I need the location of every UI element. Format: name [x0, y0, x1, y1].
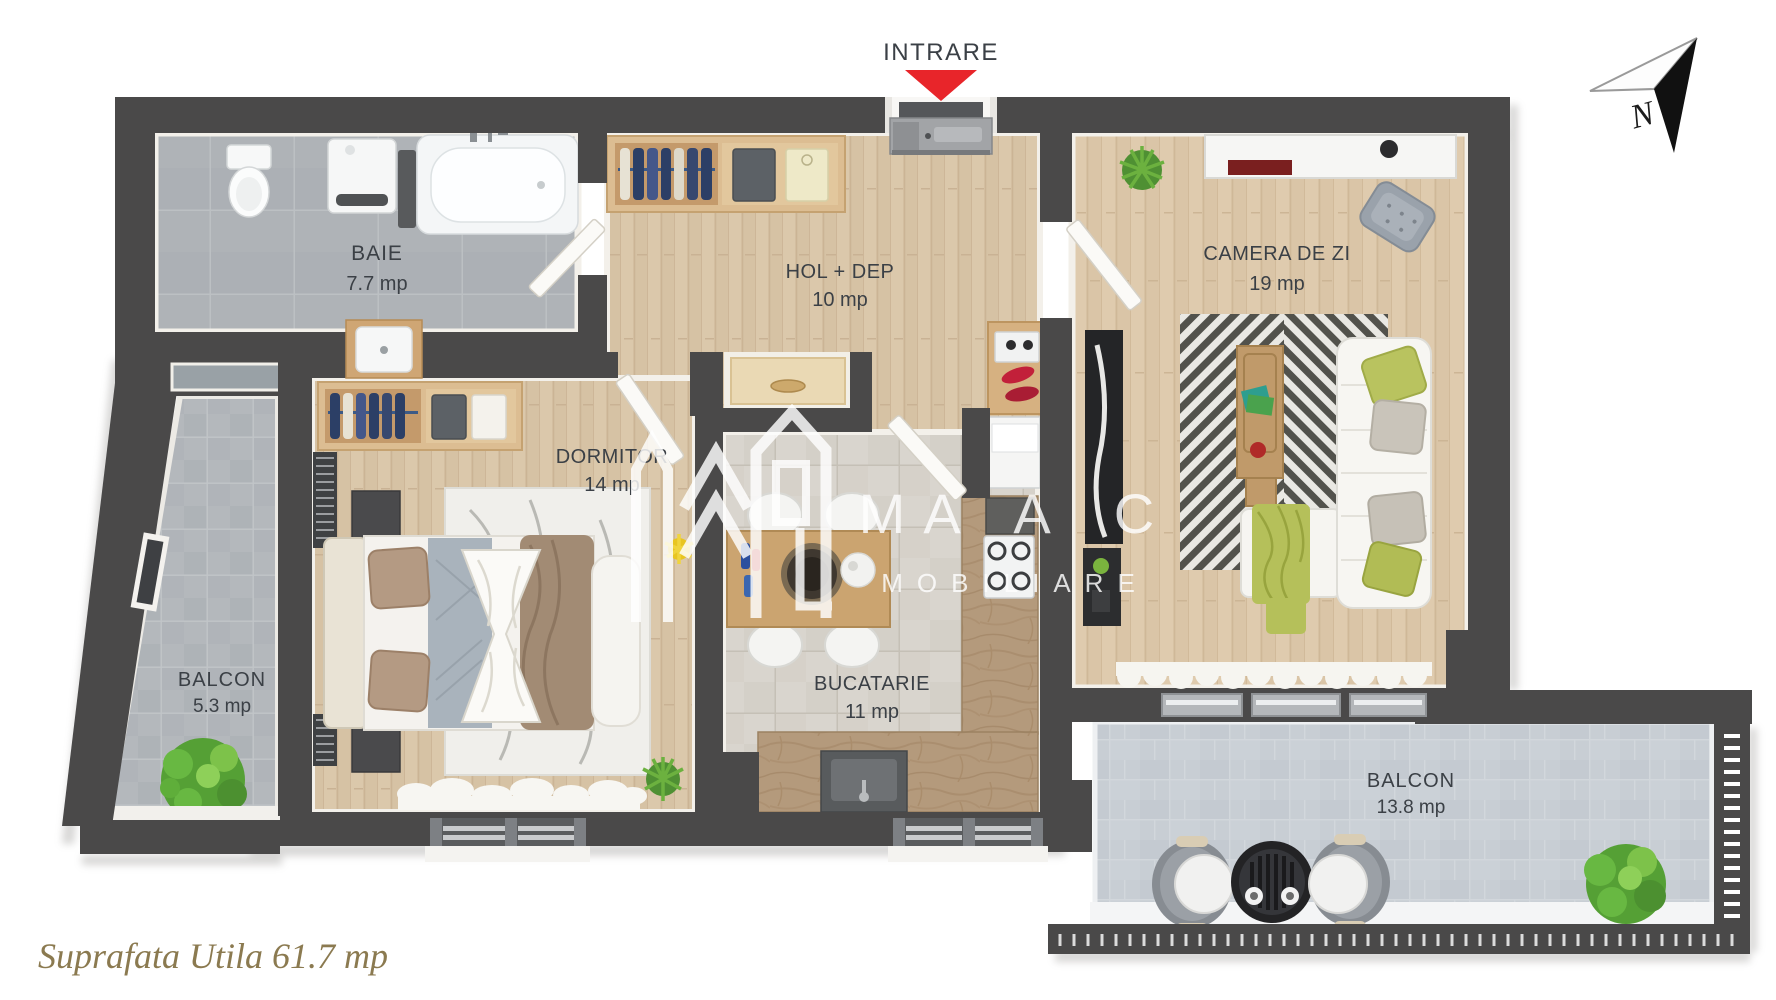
svg-text:BALCON: BALCON	[178, 669, 266, 691]
svg-text:HOL + DEP: HOL + DEP	[786, 261, 895, 283]
svg-text:BALCON: BALCON	[1367, 770, 1455, 792]
svg-text:C: C	[1114, 482, 1154, 545]
svg-text:M: M	[859, 482, 906, 545]
svg-text:11 mp: 11 mp	[845, 701, 899, 723]
svg-text:10 mp: 10 mp	[812, 289, 868, 311]
svg-text:BUCATARIE: BUCATARIE	[814, 673, 930, 695]
svg-text:Suprafata Utila 61.7 mp: Suprafata Utila 61.7 mp	[38, 936, 388, 976]
svg-text:A: A	[1013, 482, 1051, 545]
svg-text:13.8 mp: 13.8 mp	[1377, 797, 1446, 818]
svg-text:MOBILIARE: MOBILIARE	[881, 568, 1149, 598]
svg-text:5.3 mp: 5.3 mp	[193, 696, 251, 717]
svg-text:BAIE: BAIE	[351, 242, 403, 265]
svg-text:19 mp: 19 mp	[1249, 273, 1305, 295]
svg-text:7.7 mp: 7.7 mp	[346, 273, 407, 295]
svg-text:INTRARE: INTRARE	[883, 39, 999, 66]
svg-text:A: A	[923, 482, 961, 545]
svg-text:CAMERA DE ZI: CAMERA DE ZI	[1203, 243, 1350, 265]
